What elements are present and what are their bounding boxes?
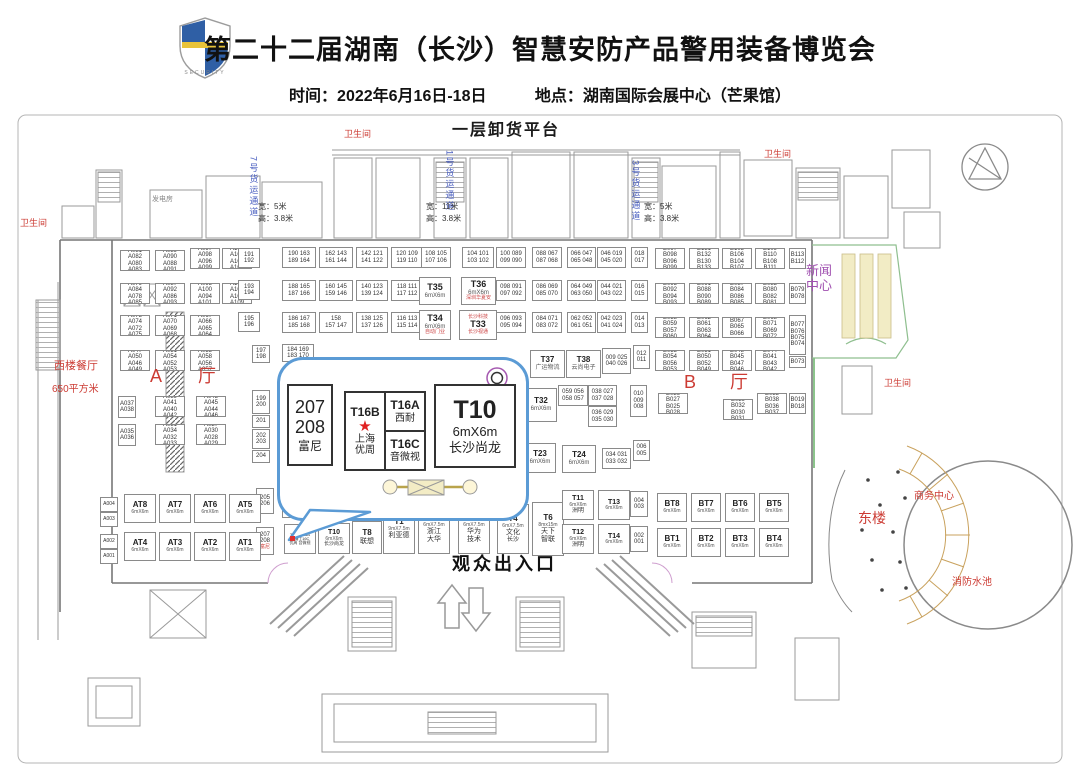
callout-booth-t10: T10 6mX6m 长沙尚龙 [434, 384, 516, 468]
callout-overlay [0, 0, 1080, 782]
callout-booth-t16c: T16C 音微视 [386, 432, 424, 469]
booth-code: T10 [453, 396, 496, 424]
exhibitor-name: 上海 [355, 434, 375, 445]
booth-number: 208 [295, 417, 325, 437]
booth-code: T16C [390, 438, 419, 451]
callout-booth-207-208: 207 208 富尼 [287, 384, 333, 466]
exhibitor-name: 优周 [355, 445, 375, 456]
booth-number: 207 [295, 397, 325, 417]
exhibitor-name: 西耐 [395, 413, 415, 424]
callout-booth-t16a: T16A 西耐 [386, 393, 424, 432]
exhibitor-name: 音微视 [390, 452, 420, 463]
booth-code: T16A [390, 399, 419, 412]
star-marker-icon: ★ [358, 419, 371, 434]
callout-booth-t16: T16B ★ 上海 优周 T16A 西耐 T16C 音微视 [344, 391, 426, 471]
entrance-gate-structure [383, 480, 477, 495]
highlight-dot [290, 536, 295, 541]
exhibitor-name: 富尼 [298, 440, 322, 453]
callout-booth-t16b: T16B ★ 上海 优周 [346, 393, 386, 469]
expo-floorplan-page: SECURITY 第二十二届湖南（长沙）智慧安防产品警用装备博览会 时间：202… [0, 0, 1080, 782]
exhibitor-name: 长沙尚龙 [449, 441, 501, 456]
callout-tail [289, 510, 370, 540]
booth-size: 6mX6m [453, 425, 498, 440]
